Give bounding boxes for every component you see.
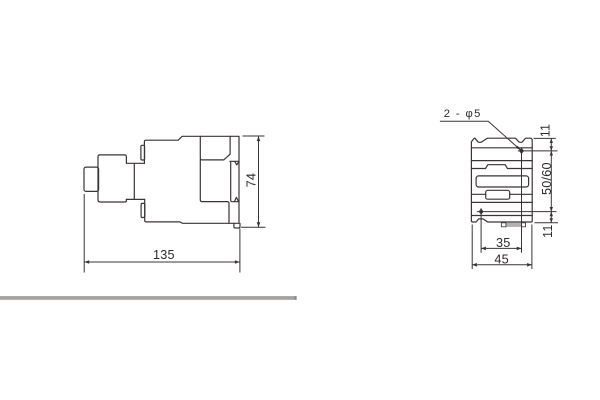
svg-text:11: 11 — [538, 124, 552, 138]
svg-text:135: 135 — [153, 248, 175, 262]
svg-text:35: 35 — [496, 236, 511, 250]
svg-text:2 - φ5: 2 - φ5 — [444, 108, 482, 120]
svg-text:11: 11 — [541, 224, 555, 238]
svg-text:74: 74 — [244, 173, 258, 188]
svg-text:45: 45 — [494, 253, 509, 267]
svg-text:50/60: 50/60 — [540, 162, 554, 195]
